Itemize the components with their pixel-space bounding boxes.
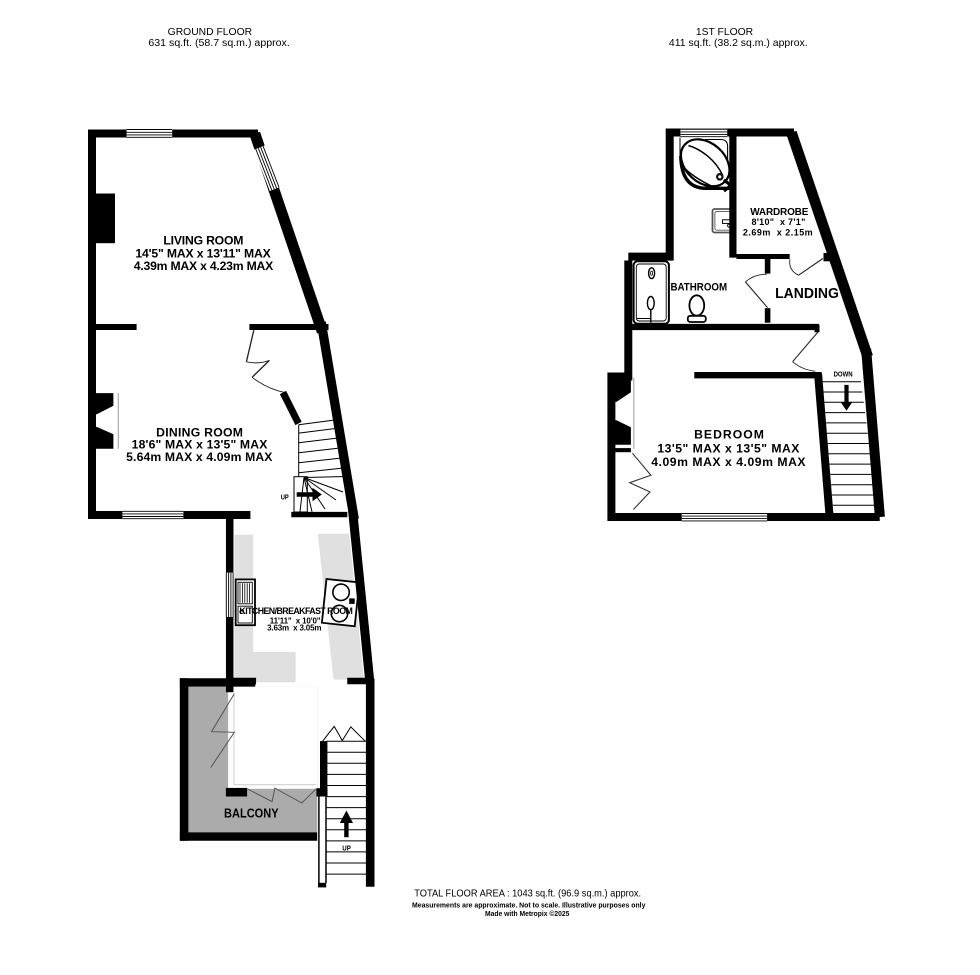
svg-text:BEDROOM: BEDROOM [694, 427, 764, 441]
svg-text:8'10" x 7'1": 8'10" x 7'1" [751, 217, 805, 227]
svg-text:BATHROOM: BATHROOM [670, 282, 727, 294]
svg-text:4.39m MAX x 4.23m MAX: 4.39m MAX x 4.23m MAX [134, 259, 274, 273]
svg-text:Made with Metropix ©2025: Made with Metropix ©2025 [485, 909, 569, 918]
svg-text:UP: UP [281, 494, 289, 501]
svg-text:TOTAL FLOOR AREA : 1043 sq.ft.: TOTAL FLOOR AREA : 1043 sq.ft. (96.9 sq.… [414, 888, 641, 899]
svg-text:5.64m MAX x 4.09m MAX: 5.64m MAX x 4.09m MAX [126, 450, 273, 464]
svg-text:Measurements are approximate.: Measurements are approximate. Not to sca… [412, 900, 645, 909]
svg-text:3.63m x 3.05m: 3.63m x 3.05m [267, 624, 321, 633]
svg-text:LIVING ROOM: LIVING ROOM [163, 233, 243, 247]
svg-text:DOWN: DOWN [834, 372, 853, 379]
svg-text:13'5" MAX x 13'5" MAX: 13'5" MAX x 13'5" MAX [657, 441, 800, 455]
svg-text:KITCHEN/BREAKFAST ROOM: KITCHEN/BREAKFAST ROOM [239, 606, 352, 616]
svg-text:4.09m MAX x 4.09m MAX: 4.09m MAX x 4.09m MAX [651, 455, 806, 469]
svg-text:BALCONY: BALCONY [224, 807, 279, 821]
svg-text:631 sq.ft. (58.7 sq.m.) approx: 631 sq.ft. (58.7 sq.m.) approx. [148, 38, 289, 49]
svg-text:1ST FLOOR: 1ST FLOOR [696, 27, 753, 38]
svg-text:2.69m x 2.15m: 2.69m x 2.15m [743, 227, 813, 237]
svg-text:UP: UP [342, 846, 351, 853]
svg-text:LANDING: LANDING [775, 286, 839, 302]
svg-text:GROUND FLOOR: GROUND FLOOR [168, 27, 252, 38]
svg-text:411 sq.ft. (38.2 sq.m.) approx: 411 sq.ft. (38.2 sq.m.) approx. [669, 38, 808, 49]
